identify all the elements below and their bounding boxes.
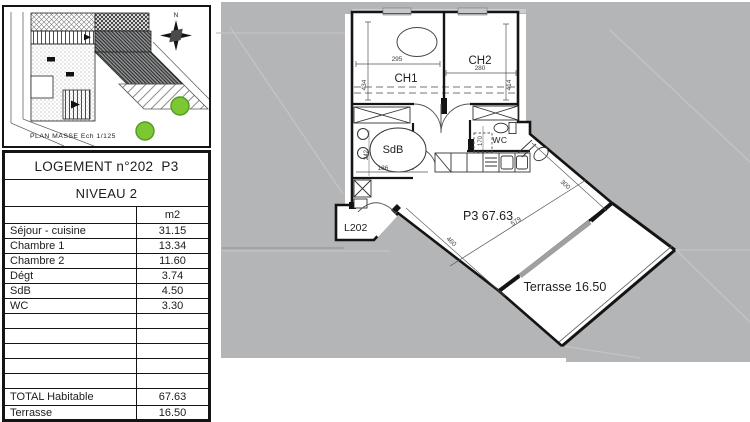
dim-sdb-height: 242 (364, 149, 370, 160)
floor-plan-panel: CH1 CH2 SdB WC L202 P3 67.63 Terrasse 16… (0, 0, 750, 420)
room-label-ch1: CH1 (394, 73, 417, 85)
dim-ch1-height: 434 (361, 79, 368, 90)
dim-ch2-width: 280 (475, 65, 486, 72)
dim-ch1-width: 295 (392, 56, 403, 63)
exterior-background-strip (566, 357, 750, 362)
room-label-sdb: SdB (383, 144, 404, 156)
window-tag (458, 8, 487, 15)
kitchen-sink-icon (517, 156, 528, 169)
window-tag (383, 8, 411, 15)
room-label-wc: WC (492, 135, 507, 145)
floor-plan-sheet: { "left_panel": { "site_plan": { "captio… (0, 0, 750, 420)
room-label-terrace: Terrasse 16.50 (524, 280, 607, 294)
sink-icon (358, 129, 369, 140)
room-label-entrance: L202 (344, 222, 368, 234)
toilet-icon (494, 123, 508, 133)
room-label-living: P3 67.63 (463, 209, 513, 223)
dim-wc-depth: 170 (478, 135, 484, 146)
wc-fixtures (494, 123, 516, 134)
kitchen-sink-icon (501, 156, 513, 169)
dim-sdb-width: 186 (378, 165, 389, 172)
bedroom-furniture-icon (397, 28, 437, 57)
dim-ch2-height: 414 (506, 79, 513, 90)
